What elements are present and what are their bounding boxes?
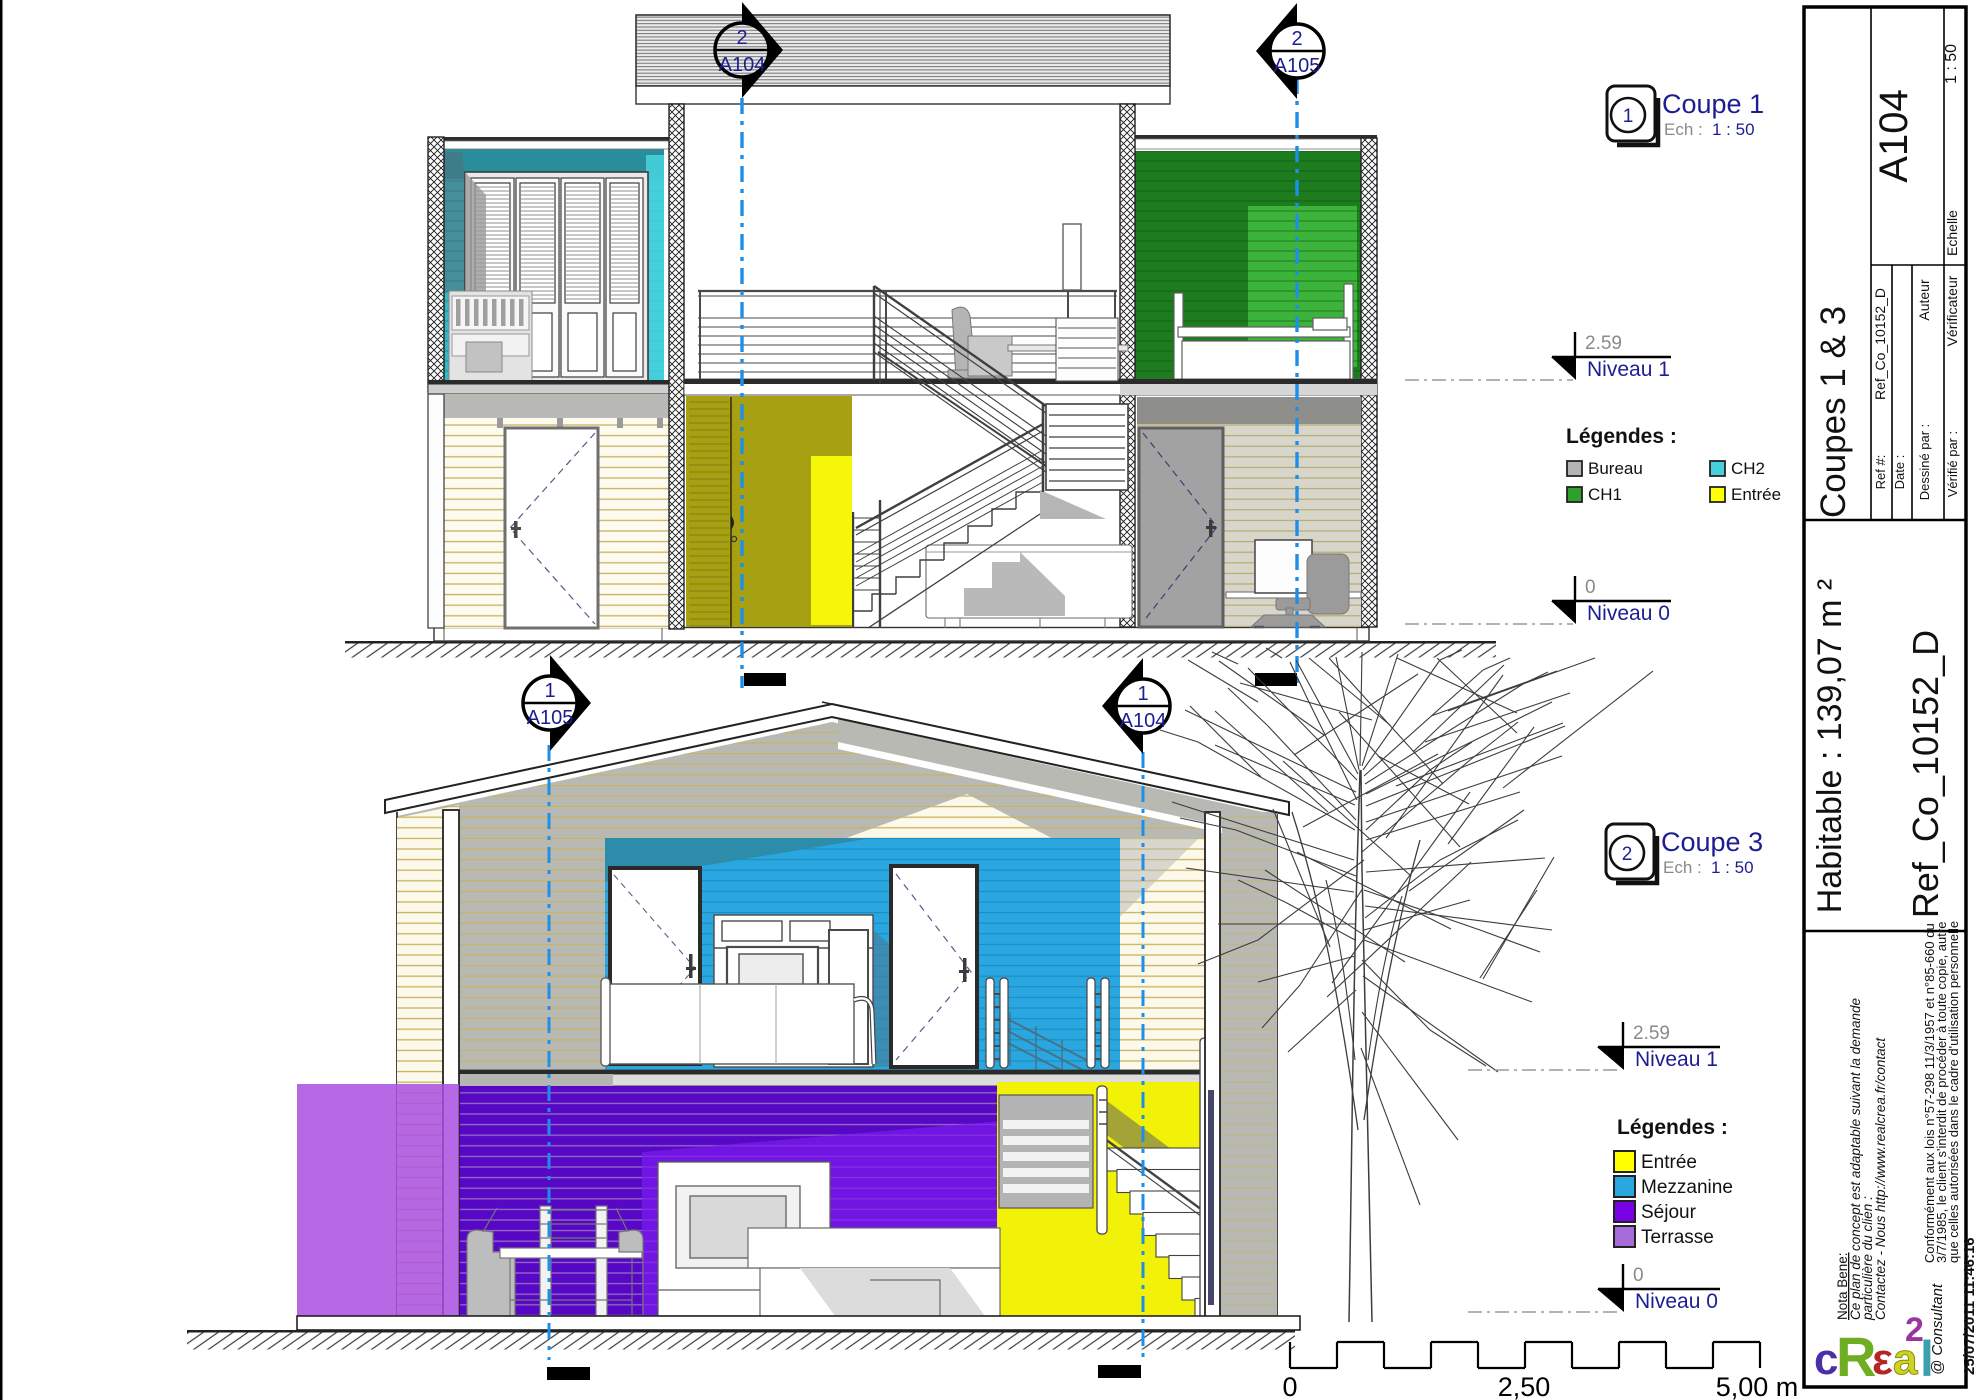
svg-text:Vérificateur: Vérificateur [1944, 275, 1960, 346]
svg-text:Coupe 1: Coupe 1 [1662, 89, 1764, 119]
svg-text:2: 2 [736, 27, 747, 49]
svg-text:Niveau 0: Niveau 0 [1587, 602, 1670, 625]
svg-text:25/07/2011 11:46:16: 25/07/2011 11:46:16 [1961, 1237, 1978, 1375]
svg-text:1: 1 [1137, 683, 1148, 705]
svg-text:Légendes :: Légendes : [1617, 1116, 1728, 1139]
svg-text:Ref_Co_10152_D: Ref_Co_10152_D [1872, 288, 1888, 400]
svg-text:que celles autorisées dans le: que celles autorisées dans le cadre d'ut… [1946, 921, 1961, 1263]
svg-text:CH2: CH2 [1731, 459, 1765, 478]
svg-text:2: 2 [1622, 844, 1633, 865]
svg-text:l: l [1920, 1331, 1934, 1387]
svg-text:Coupe 3: Coupe 3 [1661, 827, 1763, 857]
svg-text:CH1: CH1 [1588, 485, 1622, 504]
svg-text:0: 0 [1585, 577, 1596, 598]
svg-text:A104: A104 [719, 54, 766, 76]
svg-text:Entrée: Entrée [1731, 485, 1781, 504]
svg-text:1 : 50: 1 : 50 [1712, 120, 1755, 139]
svg-text:Bureau: Bureau [1588, 459, 1643, 478]
svg-text:Coupes 1 & 3: Coupes 1 & 3 [1814, 306, 1853, 518]
svg-text:1 : 50: 1 : 50 [1711, 858, 1754, 877]
svg-text:Dessiné par :: Dessiné par : [1917, 424, 1932, 501]
svg-text:c: c [1814, 1335, 1838, 1384]
svg-text:Habitable : 139,07 m ²: Habitable : 139,07 m ² [1811, 579, 1849, 914]
svg-text:Auteur: Auteur [1916, 279, 1932, 321]
svg-text:Terrasse: Terrasse [1641, 1227, 1714, 1248]
svg-text:1: 1 [544, 680, 555, 702]
svg-text:Contactez - Nous http://www.re: Contactez - Nous http://www.realcrea.fr/… [1873, 1037, 1888, 1320]
svg-text:Entrée: Entrée [1641, 1152, 1697, 1173]
svg-text:2.59: 2.59 [1585, 333, 1622, 354]
svg-text:Niveau 1: Niveau 1 [1635, 1048, 1718, 1071]
svg-text:Séjour: Séjour [1641, 1202, 1697, 1223]
svg-text:Vérifié par :: Vérifié par : [1945, 431, 1960, 497]
svg-text:A104: A104 [1872, 89, 1916, 182]
svg-text:Mezzanine: Mezzanine [1641, 1177, 1733, 1198]
svg-text:Date :: Date : [1892, 455, 1907, 490]
svg-text:A105: A105 [527, 707, 574, 729]
svg-text:Ref #:: Ref #: [1873, 455, 1888, 490]
svg-text:Ech :: Ech : [1664, 120, 1703, 139]
svg-text:0: 0 [1633, 1265, 1644, 1286]
svg-text:2.59: 2.59 [1633, 1023, 1670, 1044]
svg-text:R: R [1836, 1325, 1876, 1388]
svg-text:ε: ε [1872, 1335, 1893, 1384]
svg-text:Niveau 0: Niveau 0 [1635, 1290, 1718, 1313]
svg-text:Légendes :: Légendes : [1566, 425, 1677, 448]
svg-text:1 : 50: 1 : 50 [1943, 44, 1960, 84]
svg-text:A105: A105 [1274, 55, 1321, 77]
svg-text:Ref_Co_10152_D: Ref_Co_10152_D [1905, 630, 1946, 918]
svg-text:2: 2 [1291, 28, 1302, 50]
svg-text:1: 1 [1623, 106, 1634, 127]
svg-text:5,00 m: 5,00 m [1716, 1372, 1799, 1400]
svg-text:Niveau 1: Niveau 1 [1587, 358, 1670, 381]
svg-text:A104: A104 [1120, 710, 1167, 732]
svg-text:2,50: 2,50 [1498, 1372, 1551, 1400]
svg-text:Ech :: Ech : [1663, 858, 1702, 877]
svg-text:0: 0 [1282, 1372, 1297, 1400]
svg-text:Echelle: Echelle [1944, 210, 1960, 256]
